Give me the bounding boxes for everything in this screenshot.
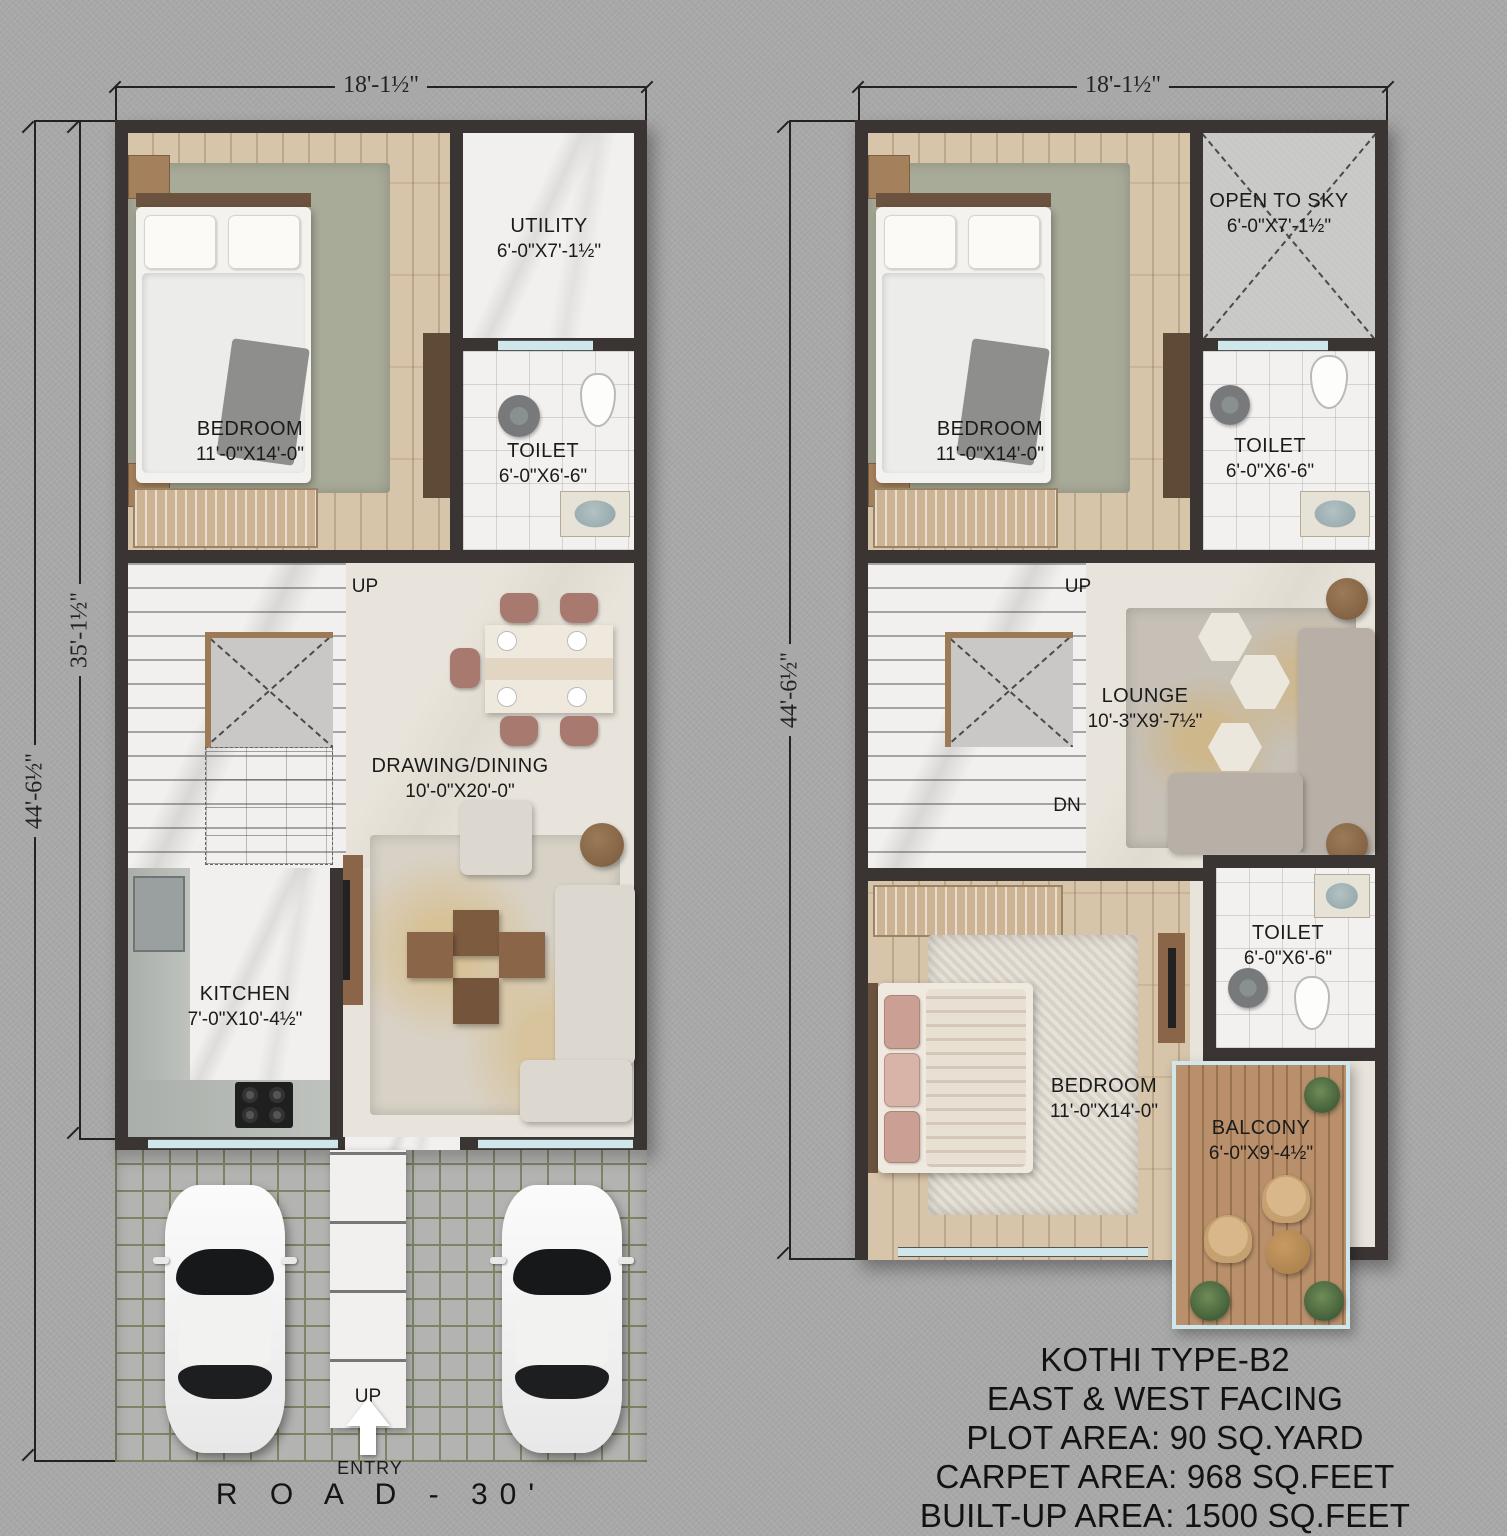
floor-plan-sheet: 18'-1½" 44'-6½" 35'-1½" — [0, 0, 1507, 1536]
window — [498, 340, 593, 351]
road-label: R O A D - 30' — [115, 1478, 647, 1512]
room-size: 7'-0"X10'-4½" — [155, 1007, 335, 1032]
room-name: TOILET — [463, 438, 623, 464]
balcony-chair — [1204, 1215, 1252, 1263]
coffee-table — [453, 910, 499, 956]
gf-bedroom-label: BEDROOM 11'-0"X14'-0" — [130, 416, 370, 467]
arrow-stem — [360, 1425, 376, 1455]
room-name: TOILET — [1208, 920, 1368, 946]
bed-headboard — [876, 193, 1051, 207]
ff-lounge-sofa-long — [1298, 628, 1375, 853]
table-runner — [485, 658, 613, 680]
coffee-table — [499, 932, 545, 978]
car — [502, 1185, 622, 1453]
side-table — [580, 823, 624, 867]
dining-chair — [500, 716, 538, 746]
window — [148, 1139, 338, 1149]
burner — [269, 1087, 285, 1103]
extension-line — [81, 120, 116, 122]
room-size: 11'-0"X14'-0" — [870, 442, 1110, 467]
plot-area: PLOT AREA: 90 SQ.YARD — [830, 1418, 1500, 1457]
dimension-tick — [22, 1449, 35, 1462]
wall — [450, 133, 463, 563]
car-rear-window — [515, 1365, 609, 1400]
gf-stair-void — [205, 632, 333, 747]
ff-balcony: BALCONY 6'-0"X9'-4½" — [1172, 1061, 1350, 1329]
burner — [242, 1087, 258, 1103]
tv-icon — [343, 880, 350, 980]
dining-chair — [500, 593, 538, 623]
dimension-tick — [777, 121, 790, 134]
dimension-tick — [67, 1127, 80, 1140]
built-up-area: BUILT-UP AREA: 1500 SQ.FEET — [830, 1496, 1500, 1535]
ff-bedroom-rear-wardrobe — [873, 885, 1063, 937]
gf-sofa-chaise — [520, 1060, 632, 1122]
plan-title: KOTHI TYPE-B2 — [830, 1340, 1500, 1379]
ff-toilet-rear-label: TOILET 6'-0"X6'-6" — [1208, 920, 1368, 971]
plate-icon — [497, 631, 517, 651]
room-name: LOUNGE — [1055, 683, 1235, 709]
car — [165, 1185, 285, 1453]
shower-icon — [498, 395, 540, 437]
plate-icon — [567, 631, 587, 651]
gf-dining-table — [485, 625, 613, 713]
car-mirror — [153, 1257, 169, 1264]
gf-stairs-up-label: UP — [335, 576, 395, 598]
balcony-chair — [1262, 1175, 1310, 1223]
dimension-text: 35'-1½" — [67, 584, 94, 676]
window — [478, 1139, 633, 1149]
bed-pillow — [884, 995, 920, 1049]
balcony-table — [1266, 1230, 1310, 1274]
ff-bedroom-desk — [1163, 333, 1190, 498]
void-diagonal — [211, 632, 333, 742]
room-name: UTILITY — [465, 213, 633, 239]
room-name: TOILET — [1190, 433, 1350, 459]
room-size: 6'-0"X6'-6" — [1190, 459, 1350, 484]
gf-bedroom-wardrobe — [133, 488, 318, 548]
car-windshield — [176, 1249, 274, 1295]
side-table — [1326, 578, 1368, 620]
car-windshield — [513, 1249, 611, 1295]
gf-side-dimension-inner: 35'-1½" — [79, 120, 83, 1140]
room-name: BEDROOM — [130, 416, 370, 442]
extension-line — [115, 88, 117, 120]
plant-icon — [1190, 1281, 1230, 1321]
car-roof — [179, 1295, 270, 1365]
room-size: 10'-0"X20'-0" — [320, 779, 600, 804]
dimension-text: 18'-1½" — [335, 72, 427, 99]
burner — [269, 1107, 285, 1123]
gf-toilet-label: TOILET 6'-0"X6'-6" — [463, 438, 623, 489]
carpet-area: CARPET AREA: 968 SQ.FEET — [830, 1457, 1500, 1496]
wall — [868, 868, 1215, 881]
shower-icon — [1228, 968, 1268, 1008]
dimension-tick — [22, 121, 35, 134]
gf-top-dimension: 18'-1½" — [115, 86, 647, 90]
dimension-text: 44'-6½" — [22, 745, 49, 837]
ff-toilet-rear: TOILET 6'-0"X6'-6" — [1203, 855, 1375, 1061]
void-diagonal — [210, 638, 333, 747]
gf-utility-label: UTILITY 6'-0"X7'-1½" — [465, 213, 633, 264]
ff-bedroom-front-wardrobe — [873, 488, 1058, 548]
dining-chair — [450, 648, 480, 688]
wall — [868, 550, 1375, 563]
ff-bedroom-front-label: BEDROOM 11'-0"X14'-0" — [870, 416, 1110, 467]
extension-line — [81, 1138, 116, 1140]
plan-info-block: KOTHI TYPE-B2 EAST & WEST FACING PLOT AR… — [830, 1340, 1500, 1535]
ff-up-label: UP — [1048, 576, 1108, 598]
ff-top-dimension: 18'-1½" — [858, 86, 1388, 90]
bed-pillow — [144, 215, 216, 269]
dimension-tick — [777, 1247, 790, 1260]
extension-line — [36, 1460, 116, 1462]
room-name: BEDROOM — [870, 416, 1110, 442]
washbasin-icon — [560, 491, 630, 537]
bed-pillow — [968, 215, 1040, 269]
car-rear-window — [178, 1365, 272, 1400]
entry-arrow-icon — [346, 1398, 390, 1456]
stove-icon — [235, 1082, 293, 1128]
entry-opening — [345, 1137, 460, 1150]
extension-line — [791, 1258, 856, 1260]
car-mirror — [618, 1257, 634, 1264]
room-name: OPEN TO SKY — [1193, 188, 1365, 214]
gf-side-dimension-outer: 44'-6½" — [34, 120, 38, 1462]
shower-icon — [1210, 385, 1250, 425]
window — [898, 1247, 1148, 1257]
room-size: 6'-0"X6'-6" — [1208, 946, 1368, 971]
ff-stair-void — [945, 632, 1073, 747]
room-name: BALCONY — [1176, 1115, 1346, 1141]
washbasin-icon — [1300, 491, 1370, 537]
ff-toilet-front-label: TOILET 6'-0"X6'-6" — [1190, 433, 1350, 484]
ff-side-dimension: 44'-6½" — [789, 120, 793, 1260]
bed-pillow — [884, 215, 956, 269]
dimension-tick — [67, 121, 80, 134]
ground-floor-building: BEDROOM 11'-0"X14'-0" UTILITY 6'-0"X7'-1… — [115, 120, 647, 1150]
washbasin-icon — [1314, 874, 1370, 918]
dimension-text: 18'-1½" — [1077, 72, 1169, 99]
bed-pillow — [228, 215, 300, 269]
room-size: 6'-0"X7'-1½" — [465, 239, 633, 264]
extension-line — [791, 120, 856, 122]
coffee-table — [453, 978, 499, 1024]
gf-kitchen-floor — [190, 868, 330, 1080]
tv-icon — [1168, 948, 1176, 1028]
dimension-text: 44'-6½" — [777, 644, 804, 736]
gf-drawing-dining-label: DRAWING/DINING 10'-0"X20'-0" — [320, 753, 600, 804]
ff-dn-label: DN — [1037, 795, 1097, 817]
gf-stair-lower-flight — [205, 747, 333, 865]
ff-lounge-label: LOUNGE 10'-3"X9'-7½" — [1055, 683, 1235, 734]
car-mirror — [281, 1257, 297, 1264]
bed-headboard — [136, 193, 311, 207]
gf-sofa-long — [555, 885, 635, 1065]
gf-bedroom-desk — [423, 333, 450, 498]
car-roof — [516, 1295, 607, 1365]
plant-icon — [1304, 1281, 1344, 1321]
room-size: 6'-0"X6'-6" — [463, 464, 623, 489]
room-size: 6'-0"X7'-1½" — [1193, 214, 1365, 239]
entry-label: ENTRY — [320, 1458, 420, 1479]
window — [1218, 340, 1328, 351]
room-name: KITCHEN — [155, 981, 335, 1007]
extension-line — [858, 88, 860, 120]
kitchen-sink-icon — [133, 876, 185, 952]
bed-pillow — [884, 1111, 920, 1163]
room-size: 10'-3"X9'-7½" — [1055, 709, 1235, 734]
armchair — [460, 800, 532, 875]
ff-open-to-sky-label: OPEN TO SKY 6'-0"X7'-1½" — [1193, 188, 1365, 239]
extension-line — [645, 88, 647, 120]
ff-lounge-sofa-short — [1168, 773, 1303, 853]
plate-icon — [567, 687, 587, 707]
plan-facing: EAST & WEST FACING — [830, 1379, 1500, 1418]
plate-icon — [497, 687, 517, 707]
wall — [128, 550, 634, 563]
gf-parking: UP — [115, 1150, 647, 1462]
room-size: 11'-0"X14'-0" — [130, 442, 370, 467]
coffee-table — [407, 932, 453, 978]
arrow-head — [346, 1398, 390, 1426]
ff-balcony-label: BALCONY 6'-0"X9'-4½" — [1176, 1115, 1346, 1166]
kitchen-counter — [128, 1080, 330, 1137]
gf-kitchen-label: KITCHEN 7'-0"X10'-4½" — [155, 981, 335, 1032]
dining-chair — [560, 716, 598, 746]
plant-icon — [1304, 1077, 1340, 1113]
room-name: DRAWING/DINING — [320, 753, 600, 779]
first-floor-building: BEDROOM 11'-0"X14'-0" OPEN TO SKY 6'-0"X… — [855, 120, 1388, 1260]
bed-pillow — [884, 1053, 920, 1107]
bed-headboard — [868, 983, 878, 1173]
dining-chair — [560, 593, 598, 623]
room-size: 6'-0"X9'-4½" — [1176, 1141, 1346, 1166]
car-mirror — [490, 1257, 506, 1264]
burner — [242, 1107, 258, 1123]
extension-line — [1386, 88, 1388, 120]
